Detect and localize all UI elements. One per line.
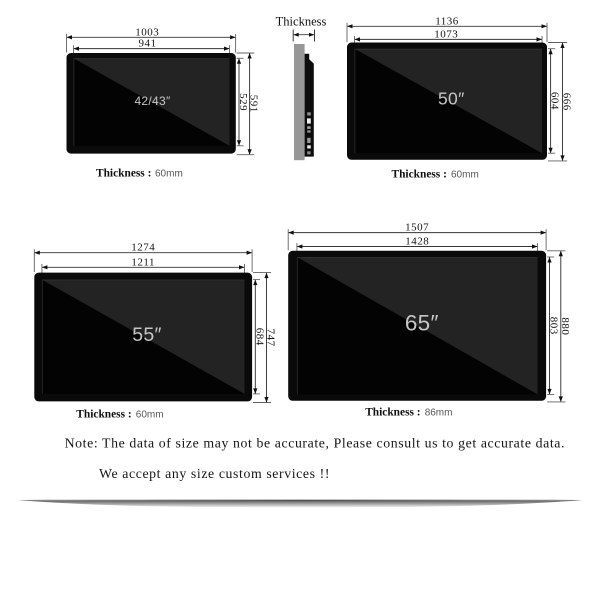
svg-text:Note: The data of size may not: Note: The data of size may not be accura…	[65, 435, 565, 450]
svg-text:86mm: 86mm	[425, 408, 453, 419]
svg-text:1073: 1073	[434, 28, 458, 40]
svg-text:Thickness :: Thickness :	[392, 168, 447, 180]
svg-text:60mm: 60mm	[451, 169, 479, 180]
svg-text:Thickness :: Thickness :	[76, 409, 131, 421]
svg-text:Thickness :: Thickness :	[365, 407, 420, 419]
svg-text:1274: 1274	[131, 242, 155, 254]
svg-text:65″: 65″	[405, 310, 439, 335]
svg-text:55″: 55″	[132, 324, 162, 346]
svg-text:880: 880	[559, 317, 571, 335]
svg-text:1136: 1136	[435, 15, 459, 27]
svg-text:60mm: 60mm	[136, 410, 164, 421]
svg-text:50″: 50″	[438, 89, 465, 109]
svg-text:Thickness :: Thickness :	[96, 168, 151, 180]
svg-text:1003: 1003	[135, 26, 159, 38]
svg-text:1211: 1211	[131, 256, 155, 268]
svg-text:684: 684	[253, 328, 265, 346]
svg-text:604: 604	[549, 92, 561, 110]
svg-text:1507: 1507	[405, 222, 429, 234]
svg-text:42/43″: 42/43″	[134, 94, 171, 108]
svg-text:591: 591	[248, 95, 260, 113]
svg-text:1428: 1428	[405, 236, 429, 248]
svg-text:941: 941	[139, 38, 157, 50]
svg-text:747: 747	[265, 329, 277, 347]
svg-text:Thickness: Thickness	[276, 15, 327, 29]
svg-text:60mm: 60mm	[155, 169, 183, 180]
svg-text:803: 803	[548, 317, 560, 335]
svg-text:666: 666	[561, 93, 573, 111]
svg-text:We accept any size custom serv: We accept any size custom services !!	[99, 466, 330, 481]
